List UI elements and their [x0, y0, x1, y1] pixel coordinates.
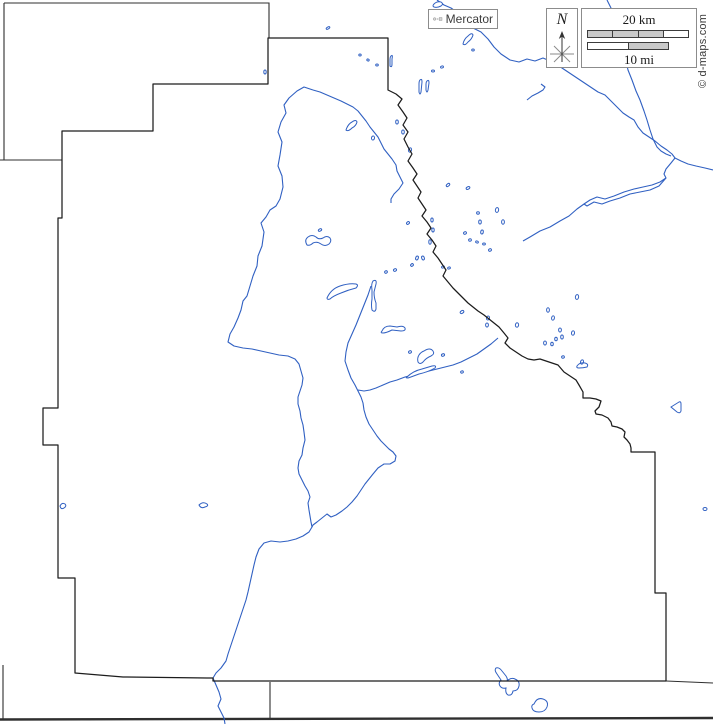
scale-bar-mi [587, 42, 669, 50]
north-label: N [557, 12, 568, 28]
south-thick-line [0, 718, 713, 720]
small-lake [393, 268, 397, 272]
scale-km-label: 20 km [582, 13, 696, 26]
small-lake [264, 70, 266, 74]
small-lake [486, 323, 489, 327]
small-lake [396, 120, 399, 124]
top-curl-lake [433, 2, 443, 8]
small-lake [479, 220, 482, 224]
compass-box: N [546, 8, 578, 68]
dumbbell-lake [306, 236, 331, 246]
banana-lake [327, 284, 358, 300]
triangle-lake [671, 402, 681, 413]
scale-bar-km [587, 30, 689, 38]
small-lake [384, 270, 388, 273]
small-lake [318, 228, 322, 232]
small-lake [441, 353, 445, 356]
small-lake [495, 207, 499, 212]
nw-diagonal-sliver [346, 121, 357, 131]
southwest-branch [523, 158, 675, 241]
small-lake [326, 26, 330, 30]
small-lake [515, 323, 519, 328]
projection-legend: Mercator [428, 9, 498, 29]
small-lake [432, 70, 435, 72]
small-lake [551, 342, 554, 346]
small-lake [376, 64, 379, 66]
paired-sliver-b [426, 80, 429, 92]
southwest-feeder [358, 338, 498, 391]
paired-sliver-a [419, 79, 422, 94]
rivers [213, 0, 713, 724]
small-lake [447, 267, 450, 270]
west-main-river [213, 87, 313, 724]
small-lake [575, 294, 579, 299]
small-lake [475, 241, 478, 244]
copyright-text: © d-maps.com [697, 14, 709, 88]
county-boundary [43, 38, 666, 681]
county-outline [43, 38, 666, 681]
small-lake [547, 308, 550, 312]
lakes [60, 2, 707, 712]
small-squiggle-stream [527, 84, 545, 100]
scale-box: 20 km 10 mi [581, 8, 697, 68]
small-vertical-sliver [390, 55, 392, 66]
arrow-icon [437, 18, 439, 19]
projection-icon [433, 12, 443, 26]
small-lake [431, 218, 433, 222]
small-lake [367, 59, 370, 62]
small-lake [559, 328, 562, 332]
small-lake [555, 337, 558, 341]
small-lake [480, 230, 483, 234]
projection-label: Mercator [446, 13, 493, 25]
tiny-west-sliver [60, 503, 66, 508]
small-lake [408, 350, 412, 354]
small-lake [551, 316, 555, 321]
west-river-east-leg [313, 90, 403, 203]
small-lake [359, 54, 361, 56]
small-lake [460, 370, 463, 373]
small-lake [468, 238, 471, 241]
small-lake [472, 49, 475, 51]
small-lake [446, 183, 451, 187]
small-lake [410, 263, 414, 267]
tiny-center-sliver [199, 503, 208, 508]
small-lake [477, 212, 480, 214]
flat-square-icon [439, 18, 442, 21]
center-river [312, 286, 396, 527]
vertical-sliver-lake [372, 280, 377, 311]
small-lake [406, 221, 410, 225]
top-diagonal-sliver [463, 34, 473, 45]
compass-rose-icon [548, 28, 576, 66]
small-lake [544, 341, 547, 345]
small-lake [703, 508, 707, 511]
scale-mi-label: 10 mi [582, 53, 696, 66]
small-lake [460, 310, 465, 314]
small-lake [561, 335, 564, 339]
small-lake [466, 186, 471, 190]
small-lake [429, 240, 431, 244]
southeast-extension [666, 681, 713, 683]
small-lake [432, 228, 434, 232]
small-lake [463, 231, 467, 235]
small-lake [571, 331, 575, 336]
north-neighbor-top [4, 3, 269, 38]
map-canvas [0, 0, 713, 724]
small-lake [421, 256, 425, 261]
small-lake [561, 355, 564, 358]
small-lake [440, 66, 444, 69]
heart-lake [532, 699, 548, 712]
horizontal-sliver-lake [381, 326, 405, 333]
small-lake [402, 130, 405, 134]
small-lake [580, 359, 584, 364]
thin-banana-lake [406, 366, 435, 378]
map-page: Mercator N 20 km 10 mi © d-maps.com [0, 0, 713, 724]
small-lake [488, 248, 492, 252]
globe-circle-icon [433, 18, 436, 21]
small-lake [502, 220, 505, 224]
small-lake [415, 256, 419, 261]
c-curl-lake [418, 349, 434, 364]
small-lake [483, 243, 486, 245]
small-lake [371, 136, 375, 140]
